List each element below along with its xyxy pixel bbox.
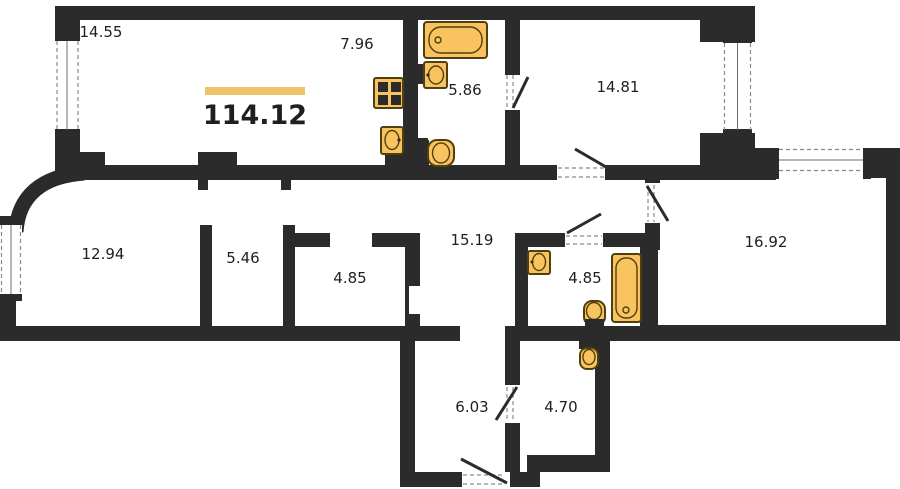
toilet-icon	[579, 341, 598, 369]
window-top-left	[55, 34, 80, 136]
bathtub-icon	[612, 254, 641, 322]
door-bathroom-top	[505, 75, 528, 110]
bathtub-icon	[424, 22, 487, 58]
floor-plan-drawing: 114.12 14.55 7.96 5.86 14.81 12.94 5.46 …	[0, 0, 900, 489]
room-label: 16.92	[745, 233, 788, 251]
door-wc-bottom	[496, 386, 520, 423]
door-entrance	[461, 459, 507, 487]
door-bedroom-top-right	[557, 149, 606, 180]
room-label: 4.70	[544, 398, 577, 416]
room-label: 12.94	[82, 245, 125, 263]
sink-icon	[521, 251, 550, 274]
toilet-icon	[584, 301, 605, 327]
floor-plan: 114.12 14.55 7.96 5.86 14.81 12.94 5.46 …	[0, 0, 900, 489]
window-left-lower	[0, 218, 22, 301]
room-label: 14.55	[80, 23, 123, 41]
door-living-room-right	[645, 184, 668, 223]
room-label: 4.85	[568, 269, 601, 287]
room-label: 4.85	[333, 269, 366, 287]
sink-icon	[418, 62, 447, 88]
total-area-value: 114.12	[203, 100, 307, 131]
room-label: 6.03	[455, 398, 488, 416]
total-area-label: 114.12	[203, 87, 307, 131]
window-top-right	[723, 36, 752, 136]
stove-icon	[374, 78, 403, 108]
sink-icon	[381, 127, 403, 154]
toilet-icon	[418, 140, 454, 166]
accent-bar	[205, 87, 305, 95]
door-bathroom-right	[565, 214, 603, 247]
room-label: 15.19	[451, 231, 494, 249]
room-label: 7.96	[340, 35, 373, 53]
wall-niche	[409, 286, 420, 314]
room-label: 5.86	[448, 81, 481, 99]
window-right-horizontal	[771, 148, 871, 179]
room-label: 5.46	[226, 249, 259, 267]
room-label: 14.81	[597, 78, 640, 96]
